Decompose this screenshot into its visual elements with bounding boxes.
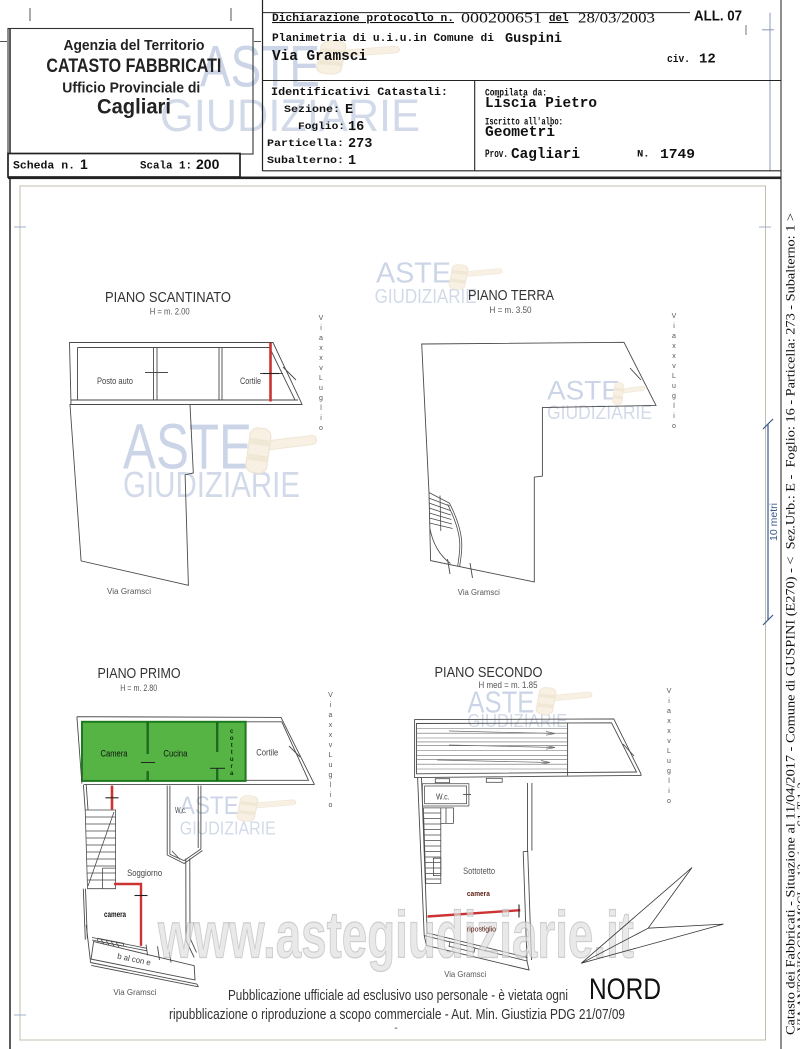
svg-text:Cagliari: Cagliari — [511, 147, 580, 163]
svg-text:l: l — [330, 782, 332, 789]
svg-text:civ.: civ. — [667, 54, 690, 66]
svg-text:Planimetria di u.i.u.in Comune: Planimetria di u.i.u.in Comune di — [272, 33, 495, 45]
svg-text:i: i — [673, 413, 675, 420]
svg-text:N.: N. — [637, 149, 650, 161]
svg-text:Cortile: Cortile — [240, 376, 261, 386]
svg-text:1: 1 — [348, 154, 356, 169]
svg-text:ripubblicazione o riproduzione: ripubblicazione o riproduzione a scopo c… — [169, 1007, 625, 1023]
svg-text:Camera: Camera — [101, 749, 128, 759]
svg-text:Geometri: Geometri — [485, 125, 555, 141]
svg-text:1749: 1749 — [660, 147, 695, 163]
svg-text:a: a — [667, 708, 671, 715]
svg-text:u: u — [329, 762, 333, 769]
svg-text:Cucina: Cucina — [163, 749, 187, 759]
svg-text:1: 1 — [80, 156, 88, 172]
svg-text:273: 273 — [348, 137, 372, 152]
svg-text:Prov.: Prov. — [485, 149, 508, 161]
svg-text:Sezione:: Sezione: — [284, 104, 340, 116]
svg-text:Pubblicazione ufficiale ad esc: Pubblicazione ufficiale ad esclusivo uso… — [228, 988, 568, 1004]
svg-text:12: 12 — [699, 52, 716, 68]
svg-text:Via Gramsci: Via Gramsci — [272, 49, 367, 65]
svg-text:g: g — [319, 395, 323, 402]
svg-text:l: l — [668, 778, 670, 785]
svg-text:g: g — [329, 772, 333, 779]
svg-text:28/03/2003: 28/03/2003 — [578, 11, 655, 27]
svg-text:-: - — [394, 1023, 397, 1034]
svg-text:x: x — [329, 732, 333, 739]
svg-text:Via Gramsci: Via Gramsci — [113, 987, 156, 997]
svg-text:H = m. 2.00: H = m. 2.00 — [150, 307, 190, 317]
svg-text:o: o — [672, 423, 676, 430]
svg-text:Scheda n.: Scheda n. — [13, 161, 75, 173]
svg-text:Subalterno:: Subalterno: — [267, 155, 344, 167]
svg-text:10 metri: 10 metri — [768, 503, 780, 541]
svg-text:Identificativi Catastali:: Identificativi Catastali: — [271, 87, 448, 99]
svg-text:t: t — [231, 750, 233, 756]
svg-text:Scala 1:: Scala 1: — [140, 161, 192, 173]
svg-text:camera: camera — [104, 910, 127, 919]
svg-text:PIANO TERRA: PIANO TERRA — [468, 287, 555, 304]
svg-text:i: i — [668, 788, 670, 795]
svg-text:o: o — [329, 802, 333, 809]
svg-text:Liscia Pietro: Liscia Pietro — [485, 96, 597, 112]
svg-text:www.astegiudiziarie.it: www.astegiudiziarie.it — [157, 898, 634, 972]
svg-text:ASTE: ASTE — [180, 792, 239, 820]
svg-text:Particella:: Particella: — [267, 138, 344, 150]
svg-text:W.c.: W.c. — [175, 806, 187, 815]
svg-text:Posto auto: Posto auto — [97, 376, 133, 386]
svg-text:Via Gramsci: Via Gramsci — [458, 587, 500, 597]
svg-text:PIANO SECONDO: PIANO SECONDO — [435, 664, 543, 681]
svg-text:i: i — [673, 323, 675, 330]
svg-text:u: u — [667, 758, 671, 765]
svg-text:L: L — [667, 748, 671, 755]
svg-text:GIUDIZIARIE: GIUDIZIARIE — [467, 711, 567, 731]
svg-text:Via Gramsci: Via Gramsci — [444, 969, 486, 979]
svg-text:x: x — [672, 353, 676, 360]
svg-text:del: del — [549, 13, 569, 25]
svg-text:NORD: NORD — [589, 973, 661, 1006]
svg-text:l: l — [673, 403, 675, 410]
svg-text:v: v — [672, 363, 676, 370]
svg-text:VIA ANTONIO GRAMSCI n. 12 pian: VIA ANTONIO GRAMSCI n. 12 piano: S1-T-1-… — [795, 779, 800, 1031]
svg-text:v: v — [667, 738, 671, 745]
svg-text:u: u — [230, 757, 234, 763]
svg-text:o: o — [230, 736, 234, 742]
svg-text:GIUDIZIARIE: GIUDIZIARIE — [180, 819, 276, 839]
svg-text:x: x — [319, 355, 323, 362]
svg-text:a: a — [319, 335, 323, 342]
svg-text:t: t — [231, 743, 233, 749]
svg-text:i: i — [320, 325, 322, 332]
svg-text:Ufficio Provinciale di: Ufficio Provinciale di — [62, 81, 200, 97]
svg-text:H = m. 3.50: H = m. 3.50 — [490, 305, 532, 315]
svg-text:l: l — [320, 405, 322, 412]
svg-text:u: u — [319, 385, 323, 392]
svg-text:v: v — [329, 742, 333, 749]
svg-text:a: a — [672, 333, 676, 340]
svg-text:u: u — [672, 383, 676, 390]
svg-text:ALL. 07: ALL. 07 — [694, 9, 742, 25]
svg-text:Cagliari: Cagliari — [97, 96, 171, 119]
svg-text:Foglio:: Foglio: — [298, 121, 345, 133]
svg-text:CATASTO FABBRICATI: CATASTO FABBRICATI — [46, 55, 221, 77]
svg-text:ASTE: ASTE — [376, 258, 451, 290]
svg-text:E: E — [345, 103, 353, 118]
svg-text:Cortile: Cortile — [256, 748, 278, 758]
svg-text:v: v — [319, 365, 323, 372]
svg-text:g: g — [672, 393, 676, 400]
svg-text:x: x — [329, 722, 333, 729]
svg-text:L: L — [329, 752, 333, 759]
svg-text:H = m. 2.80: H = m. 2.80 — [120, 683, 157, 693]
svg-text:GIUDIZIARIE: GIUDIZIARIE — [123, 464, 300, 505]
svg-text:L: L — [319, 375, 323, 382]
svg-text:Guspini: Guspini — [505, 31, 562, 47]
svg-text:x: x — [667, 718, 671, 725]
svg-text:i: i — [320, 415, 322, 422]
svg-text:Soggiorno: Soggiorno — [127, 868, 162, 878]
svg-text:PIANO PRIMO: PIANO PRIMO — [98, 665, 181, 682]
svg-text:Via Gramsci: Via Gramsci — [107, 586, 151, 596]
svg-text:i: i — [330, 792, 332, 799]
svg-text:16: 16 — [348, 120, 364, 135]
svg-text:ASTE: ASTE — [547, 376, 620, 406]
svg-text:g: g — [667, 768, 671, 775]
svg-text:W.c.: W.c. — [436, 793, 450, 802]
svg-text:o: o — [319, 425, 323, 432]
svg-text:x: x — [672, 343, 676, 350]
svg-text:Dichiarazione protocollo n.: Dichiarazione protocollo n. — [272, 13, 454, 25]
svg-text:200: 200 — [196, 156, 220, 172]
svg-text:i: i — [668, 698, 670, 705]
svg-text:Agenzia del Territorio: Agenzia del Territorio — [64, 38, 205, 54]
svg-text:x: x — [667, 728, 671, 735]
svg-text:V: V — [328, 692, 333, 699]
svg-text:V: V — [319, 315, 324, 322]
svg-text:V: V — [672, 313, 677, 320]
svg-text:000200651: 000200651 — [461, 11, 542, 27]
svg-text:Sottotetto: Sottotetto — [463, 866, 495, 876]
svg-text:L: L — [672, 373, 676, 380]
svg-text:V: V — [667, 688, 672, 695]
svg-text:i: i — [330, 702, 332, 709]
svg-text:ripostiglio: ripostiglio — [467, 925, 496, 934]
svg-text:PIANO SCANTINATO: PIANO SCANTINATO — [105, 289, 231, 306]
svg-text:o: o — [667, 798, 671, 805]
svg-text:x: x — [319, 345, 323, 352]
svg-text:H med = m. 1.85: H med = m. 1.85 — [479, 680, 538, 690]
svg-text:a: a — [329, 712, 333, 719]
